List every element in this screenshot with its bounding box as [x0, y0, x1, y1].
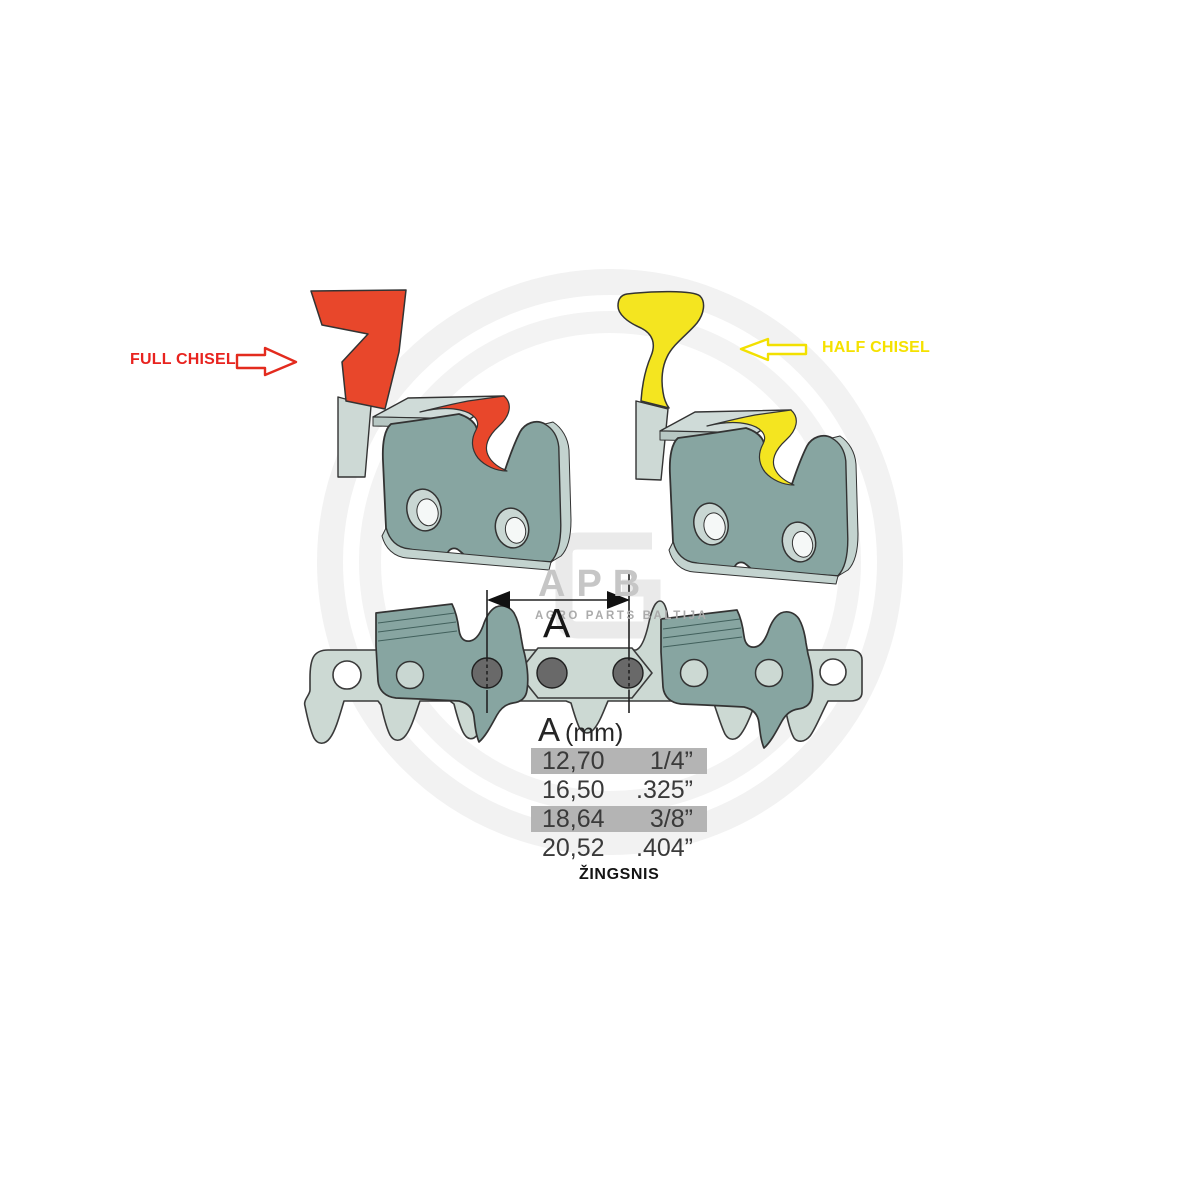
rivet-ring-2 — [756, 660, 783, 687]
half-chisel-label: HALF CHISEL — [822, 339, 930, 357]
pitch-inch-value: 1/4” — [650, 747, 707, 776]
table-header-letter: A — [538, 711, 560, 748]
cutter-link-half-chisel — [660, 410, 858, 584]
table-header-unit: (mm) — [565, 719, 623, 747]
table-row: 20,52 .404” — [531, 835, 707, 861]
table-row: 12,70 1/4” — [531, 748, 707, 774]
table-row: 18,64 3/8” — [531, 806, 707, 832]
rivet-plain — [397, 662, 424, 689]
half-chisel-profile-edge — [618, 292, 704, 408]
rivet-pitch-2 — [537, 658, 567, 688]
pitch-mm-value: 12,70 — [531, 747, 605, 776]
chainsaw-chain-pitch-diagram: APB AGRO PARTS BALTIJA FULL CHISEL HALF … — [0, 0, 1188, 1188]
pitch-mm-value: 18,64 — [531, 805, 605, 834]
full-chisel-label: FULL CHISEL — [130, 351, 236, 369]
pitch-inch-value: .404” — [636, 834, 707, 863]
dimension-letter: A — [543, 600, 570, 647]
full-chisel-arrow-icon — [237, 348, 296, 375]
cutter-link-full-chisel — [373, 396, 571, 570]
strap-hole-right — [820, 659, 846, 685]
full-chisel-profile-base — [338, 397, 371, 477]
table-row: 16,50 .325” — [531, 777, 707, 803]
strap-hole-left — [333, 661, 361, 689]
rivet-pitch-3 — [613, 658, 643, 688]
pitch-caption: ŽINGSNIS — [579, 866, 659, 884]
pitch-inch-value: .325” — [636, 776, 707, 805]
pitch-table-header: A(mm) — [538, 711, 623, 749]
rivet-ring-1 — [681, 660, 708, 687]
pitch-mm-value: 20,52 — [531, 834, 605, 863]
pitch-inch-value: 3/8” — [650, 805, 707, 834]
pitch-mm-value: 16,50 — [531, 776, 605, 805]
